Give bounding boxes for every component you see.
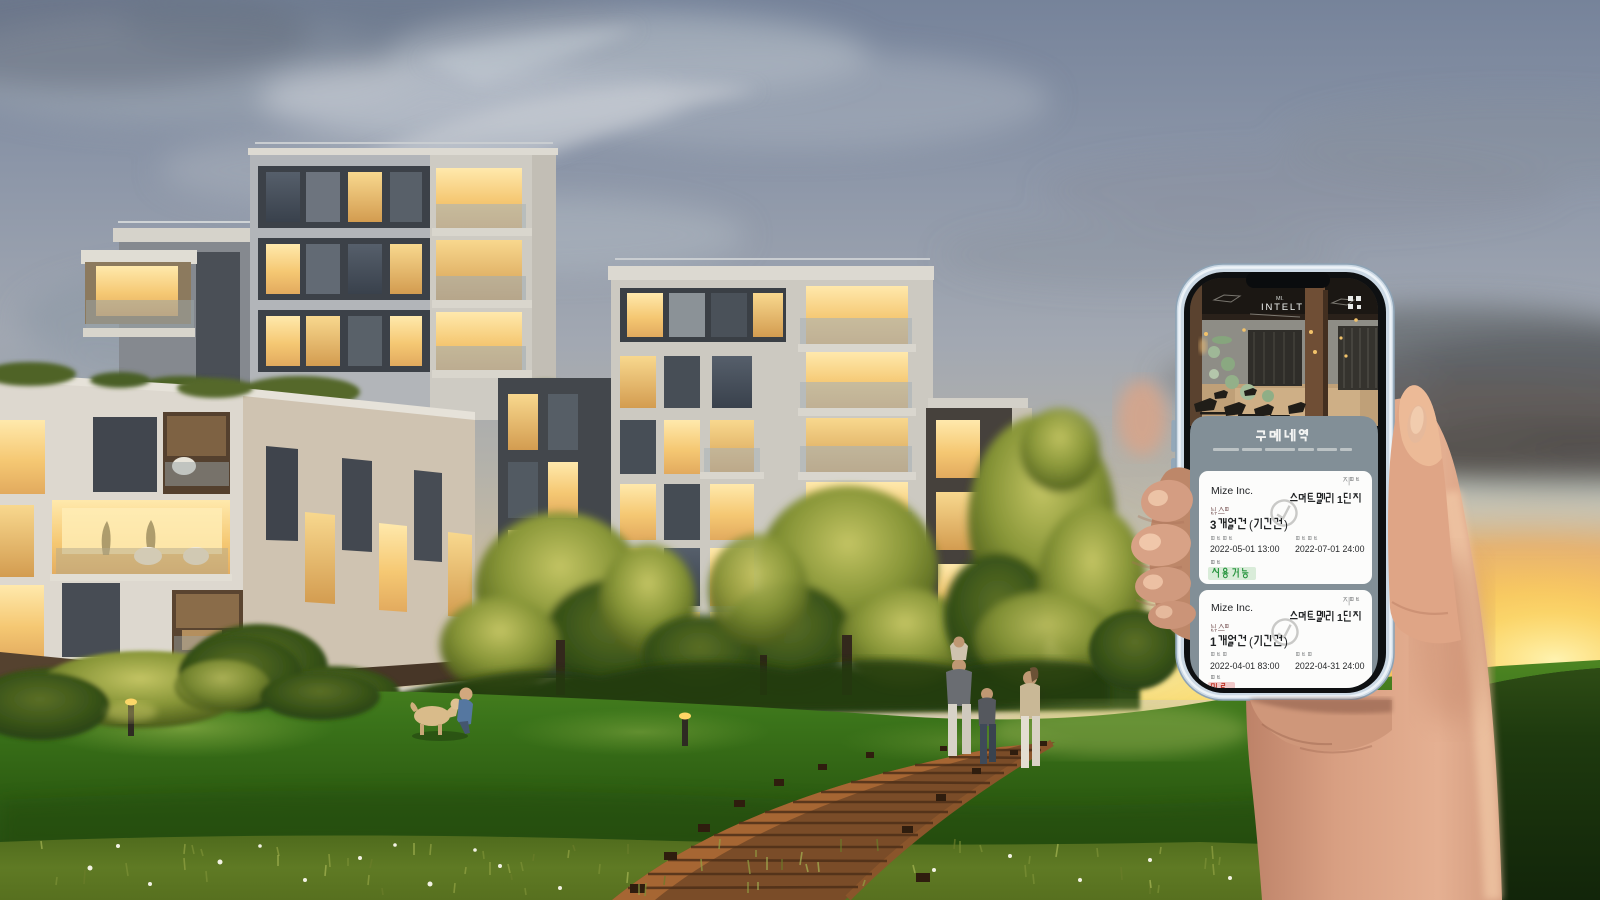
svg-text:(: (	[1249, 637, 1253, 649]
svg-text:MI.: MI.	[1276, 296, 1284, 302]
svg-text:3: 3	[1210, 520, 1216, 532]
svg-text:): )	[1284, 520, 1288, 532]
svg-text:1: 1	[1337, 494, 1343, 506]
svg-text:INTELT: INTELT	[1261, 302, 1304, 313]
svg-text:2022-04-31 24:00: 2022-04-31 24:00	[1295, 661, 1365, 671]
svg-text:Mize Inc.: Mize Inc.	[1211, 485, 1253, 497]
svg-text:(: (	[1249, 520, 1253, 532]
svg-text:2022-07-01 24:00: 2022-07-01 24:00	[1295, 544, 1365, 554]
svg-text:2022-04-01 83:00: 2022-04-01 83:00	[1210, 661, 1280, 671]
svg-text:1: 1	[1210, 637, 1217, 649]
svg-text:): )	[1284, 637, 1288, 649]
svg-text:1: 1	[1337, 612, 1343, 624]
svg-text:2022-05-01 13:00: 2022-05-01 13:00	[1210, 544, 1280, 554]
svg-text:Mize Inc.: Mize Inc.	[1211, 602, 1253, 614]
